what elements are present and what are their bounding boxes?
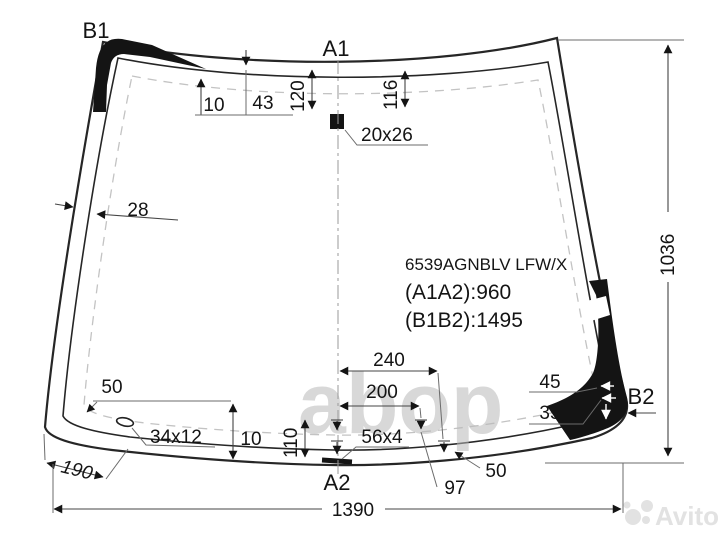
svg-text:120: 120 [288,80,309,112]
svg-text:190: 190 [59,456,95,484]
svg-text:97: 97 [444,478,465,499]
spec-b1b2: (B1B2):1495 [405,309,523,332]
avito-watermark: Avito [624,500,720,531]
svg-text:28: 28 [127,200,148,221]
svg-text:34x12: 34x12 [150,427,202,448]
dim-50-left: 50 [87,377,231,412]
avito-watermark-text: Avito [655,501,719,531]
part-number: 6539AGNBLV LFW/X [405,255,567,274]
svg-text:1036: 1036 [658,234,679,276]
svg-text:56x4: 56x4 [361,427,403,448]
dim-34x12: 34x12 [132,427,215,448]
a2-edge-tick [322,460,352,462]
svg-text:110: 110 [281,428,302,458]
spec-a1a2: (A1A2):960 [405,281,511,304]
dim-43: 43 [252,93,273,114]
dim-190: 190 [44,434,128,485]
label-a1: A1 [323,36,350,61]
label-b2: B2 [628,384,655,409]
left-hole-oval [116,416,134,427]
svg-text:10: 10 [240,429,261,450]
svg-text:50: 50 [101,377,122,398]
dim-10-top: 10 [203,95,224,116]
b1-black-corner-marker [93,39,206,112]
svg-text:35: 35 [539,403,560,424]
svg-text:45: 45 [539,372,560,393]
svg-text:50: 50 [485,461,506,482]
svg-text:200: 200 [366,382,398,403]
mirror-mount-square [330,114,344,129]
avito-dots-icon [624,500,654,525]
label-a2: A2 [324,470,351,495]
windshield-diagram: abop B1 A1 B2 A2 10 43 120 116 20x26 28 [0,0,720,540]
svg-text:1390: 1390 [332,500,374,521]
svg-text:20x26: 20x26 [361,125,413,146]
part-code-block: 6539AGNBLV LFW/X (A1A2):960 (B1B2):1495 [405,255,567,332]
svg-text:240: 240 [373,350,405,371]
dim-20x26: 20x26 [345,125,428,146]
label-b1: B1 [83,18,110,43]
svg-text:116: 116 [381,80,402,110]
